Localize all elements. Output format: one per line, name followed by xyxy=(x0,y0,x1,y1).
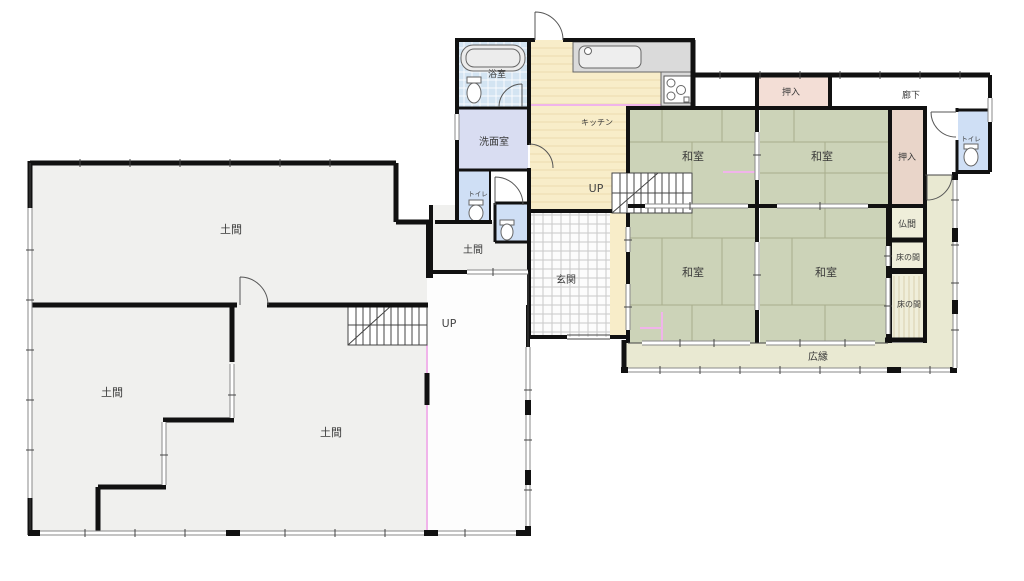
washitsu-nw-label: 和室 xyxy=(682,149,704,163)
door-arc-backdoor xyxy=(535,12,563,40)
bathtub-icon xyxy=(461,45,525,71)
window-bottom-wall xyxy=(28,530,528,536)
toilet-right-label: トイレ xyxy=(961,135,981,143)
window-bath-left xyxy=(455,114,459,140)
entrance-label: 玄関 xyxy=(556,273,576,286)
tokonoma-lower-label: 床の間 xyxy=(897,299,921,309)
hallway-side xyxy=(925,108,957,175)
staircase-left xyxy=(348,305,427,345)
washitsu-ne-label: 和室 xyxy=(811,149,833,163)
butsuma-label: 仏間 xyxy=(898,219,916,230)
washroom-label: 洗面室 xyxy=(479,135,509,148)
floor-plan-canvas: 土間 土間 土間 土間 浴室 洗面室 トイレ トイレ キッチン 玄関 UP UP… xyxy=(0,0,1024,577)
kitchen-label: キッチン xyxy=(581,118,613,127)
window-veranda-bottom xyxy=(621,367,957,373)
washitsu-sw-label: 和室 xyxy=(682,265,704,279)
toilet-small-label: トイレ xyxy=(468,190,488,198)
veranda-label: 広縁 xyxy=(808,350,828,363)
bath-label: 浴室 xyxy=(488,68,506,80)
window-left-wall xyxy=(28,208,32,498)
window-small-doma xyxy=(467,270,528,274)
doma-left-label: 土間 xyxy=(101,386,123,399)
floor-plan-page: 土間 土間 土間 土間 浴室 洗面室 トイレ トイレ キッチン 玄関 UP UP… xyxy=(0,0,1024,577)
tokonoma-upper-label: 床の間 xyxy=(896,252,920,262)
toilet-icon-small xyxy=(469,200,483,221)
up-main-label: UP xyxy=(589,182,604,195)
toilet-icon-bath xyxy=(467,77,481,103)
corridor-left xyxy=(427,272,528,533)
washitsu-se-label: 和室 xyxy=(815,265,837,279)
opening-east-wall xyxy=(886,246,890,334)
window-corridor-right xyxy=(525,347,531,536)
window-veranda-right xyxy=(952,172,958,368)
doma-small-label: 土間 xyxy=(463,243,483,256)
stove-icon xyxy=(664,76,691,103)
toilet-icon-right xyxy=(964,144,978,166)
hallway-label: 廊下 xyxy=(902,89,920,101)
doma-main-label: 土間 xyxy=(220,223,242,236)
window-right-wall xyxy=(988,98,992,122)
toilet-icon-second xyxy=(500,220,514,240)
up-left-label: UP xyxy=(442,317,457,330)
kitchen-sink-icon xyxy=(579,46,641,68)
doma-right-label: 土間 xyxy=(320,426,342,439)
oshiire-right-label: 押入 xyxy=(898,151,916,163)
hallway-top xyxy=(693,77,988,108)
oshiire-top-label: 押入 xyxy=(782,86,800,98)
room-fills xyxy=(30,40,988,533)
